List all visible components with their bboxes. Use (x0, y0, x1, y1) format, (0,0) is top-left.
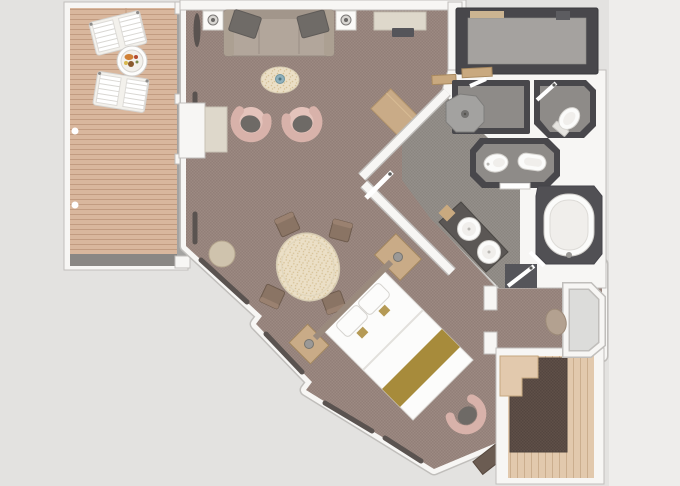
wall-stub (484, 332, 497, 354)
plant (194, 13, 201, 47)
closet-item (556, 11, 570, 20)
second-veranda (496, 348, 604, 484)
side-table (336, 11, 356, 30)
side-table (203, 11, 223, 30)
ottoman-small (209, 241, 235, 267)
food-plate (121, 50, 143, 72)
bathtub-area (530, 186, 602, 266)
coffee-table (261, 67, 299, 93)
deck-cleat (72, 202, 79, 209)
wall-stub (484, 286, 497, 310)
tub-faucet (566, 252, 572, 258)
deck-cleat (72, 128, 79, 135)
wc-room (534, 80, 596, 138)
sofa (224, 9, 334, 56)
tv (392, 28, 414, 37)
console-table (179, 103, 205, 158)
console-bench (205, 107, 227, 152)
rear-doorway (505, 264, 537, 288)
door-handle (552, 83, 555, 86)
bedside-lamp (305, 340, 314, 349)
walk-in-closet (432, 8, 598, 85)
toilet-room-door (500, 183, 530, 189)
veranda-deck-edge (70, 254, 180, 266)
shower-room (446, 79, 530, 134)
background-right-strip (609, 0, 680, 486)
closet-shelf (470, 11, 504, 18)
bay-window (566, 286, 602, 354)
closet-door (462, 67, 492, 78)
veranda-table (117, 46, 147, 76)
door-handle (388, 172, 392, 176)
bedside-lamp (394, 253, 403, 262)
closet-floor (468, 18, 586, 64)
toilet-bidet-room (470, 138, 560, 189)
floor-plan-canvas (0, 0, 680, 486)
top-wall (180, 0, 466, 10)
tv-cabinet (374, 12, 426, 30)
door-handle (529, 266, 532, 269)
veranda (64, 2, 190, 270)
floor-plan-image (0, 0, 680, 486)
